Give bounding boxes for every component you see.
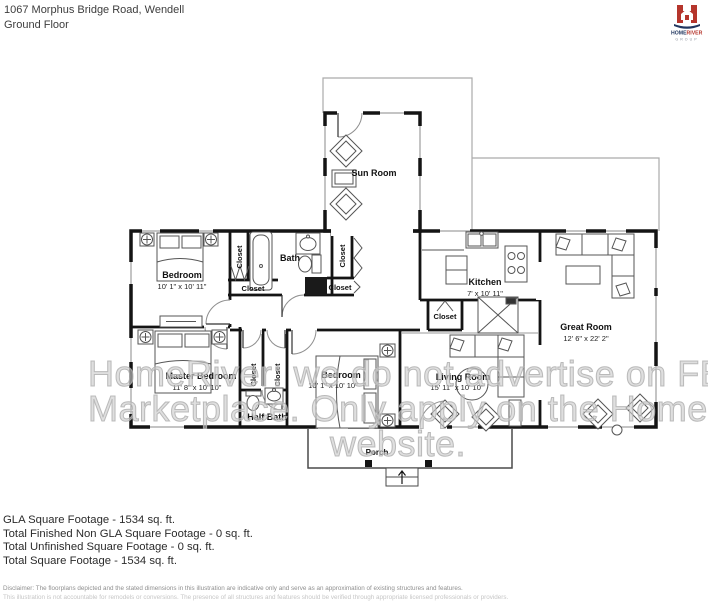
floorplan-svg: Sun Room Bedroom 10' 1" x 10' 11" Closet… — [0, 0, 708, 603]
room-dims-great-room: 12' 6" x 22' 2" — [563, 334, 609, 343]
disclaimer-line-2: This illustration is not accountable for… — [3, 594, 508, 601]
unfinished-square-footage: Total Unfinished Square Footage - 0 sq. … — [3, 541, 253, 555]
porch-structure — [308, 429, 512, 486]
non-gla-square-footage: Total Finished Non GLA Square Footage - … — [3, 528, 253, 542]
closet-label: Closet — [338, 244, 347, 267]
fridge-icon — [446, 256, 467, 284]
toilet-icon — [246, 391, 261, 411]
disclaimer-line-1: Disclaimer: The floorplans depicted and … — [3, 585, 463, 592]
closet-label: Closet — [273, 363, 282, 386]
dresser-icon — [160, 316, 202, 327]
bathtub-icon — [250, 232, 272, 290]
boundary-outline — [323, 78, 659, 231]
nightstand-lamp-icon — [380, 344, 395, 427]
porch-post — [365, 460, 372, 467]
tv-stand-icon — [509, 400, 521, 426]
room-label-master-bedroom: Master Bedroom — [165, 371, 236, 381]
hvac-unit-icon — [478, 297, 518, 333]
room-label-bedroom-top: Bedroom — [162, 270, 202, 280]
steps-icon — [386, 468, 418, 486]
coffee-table-icon — [566, 266, 600, 284]
closet-label: Closet — [235, 245, 244, 268]
room-dims-master-bedroom: 11' 8" x 10' 10" — [173, 383, 222, 392]
closet-label: Closet — [242, 284, 265, 293]
room-label-half-bath: Half Bath — [247, 412, 287, 422]
room-label-bedroom-middle: Bedroom — [321, 370, 361, 380]
room-label-great-room: Great Room — [560, 322, 612, 332]
room-dims-bedroom-top: 10' 1" x 10' 11" — [158, 282, 207, 291]
room-label-porch: Porch — [366, 448, 389, 457]
floorplan-page: 1067 Morphus Bridge Road, Wendell Ground… — [0, 0, 708, 603]
room-dims-living-room: 15' 11" x 10' 10" — [430, 383, 483, 392]
room-label-living-room: Living Room — [436, 372, 491, 382]
closet-label: Closet — [329, 283, 352, 292]
stove-icon — [505, 246, 527, 282]
sink-icon — [265, 388, 283, 404]
gla-square-footage: GLA Square Footage - 1534 sq. ft. — [3, 514, 253, 528]
porch-post — [425, 460, 432, 467]
closet-label: Closet — [249, 363, 258, 386]
room-label-bath: Bath — [280, 253, 300, 263]
toilet-icon — [299, 255, 322, 273]
armchair-icon — [583, 394, 654, 435]
closet-label: Closet — [434, 312, 457, 321]
room-label-sun-room: Sun Room — [352, 168, 397, 178]
bed-icon — [316, 356, 378, 428]
room-dims-kitchen: 7' x 10' 11" — [467, 289, 503, 298]
wall-chase — [305, 277, 327, 295]
room-dims-bedroom-middle: 10' 1" x 10' 10" — [308, 381, 358, 390]
kitchen-sink-icon — [466, 232, 498, 248]
square-footage-summary: GLA Square Footage - 1534 sq. ft. Total … — [3, 514, 253, 568]
room-label-kitchen: Kitchen — [468, 277, 501, 287]
sink-icon — [296, 233, 320, 254]
total-square-footage: Total Square Footage - 1534 sq. ft. — [3, 555, 253, 569]
